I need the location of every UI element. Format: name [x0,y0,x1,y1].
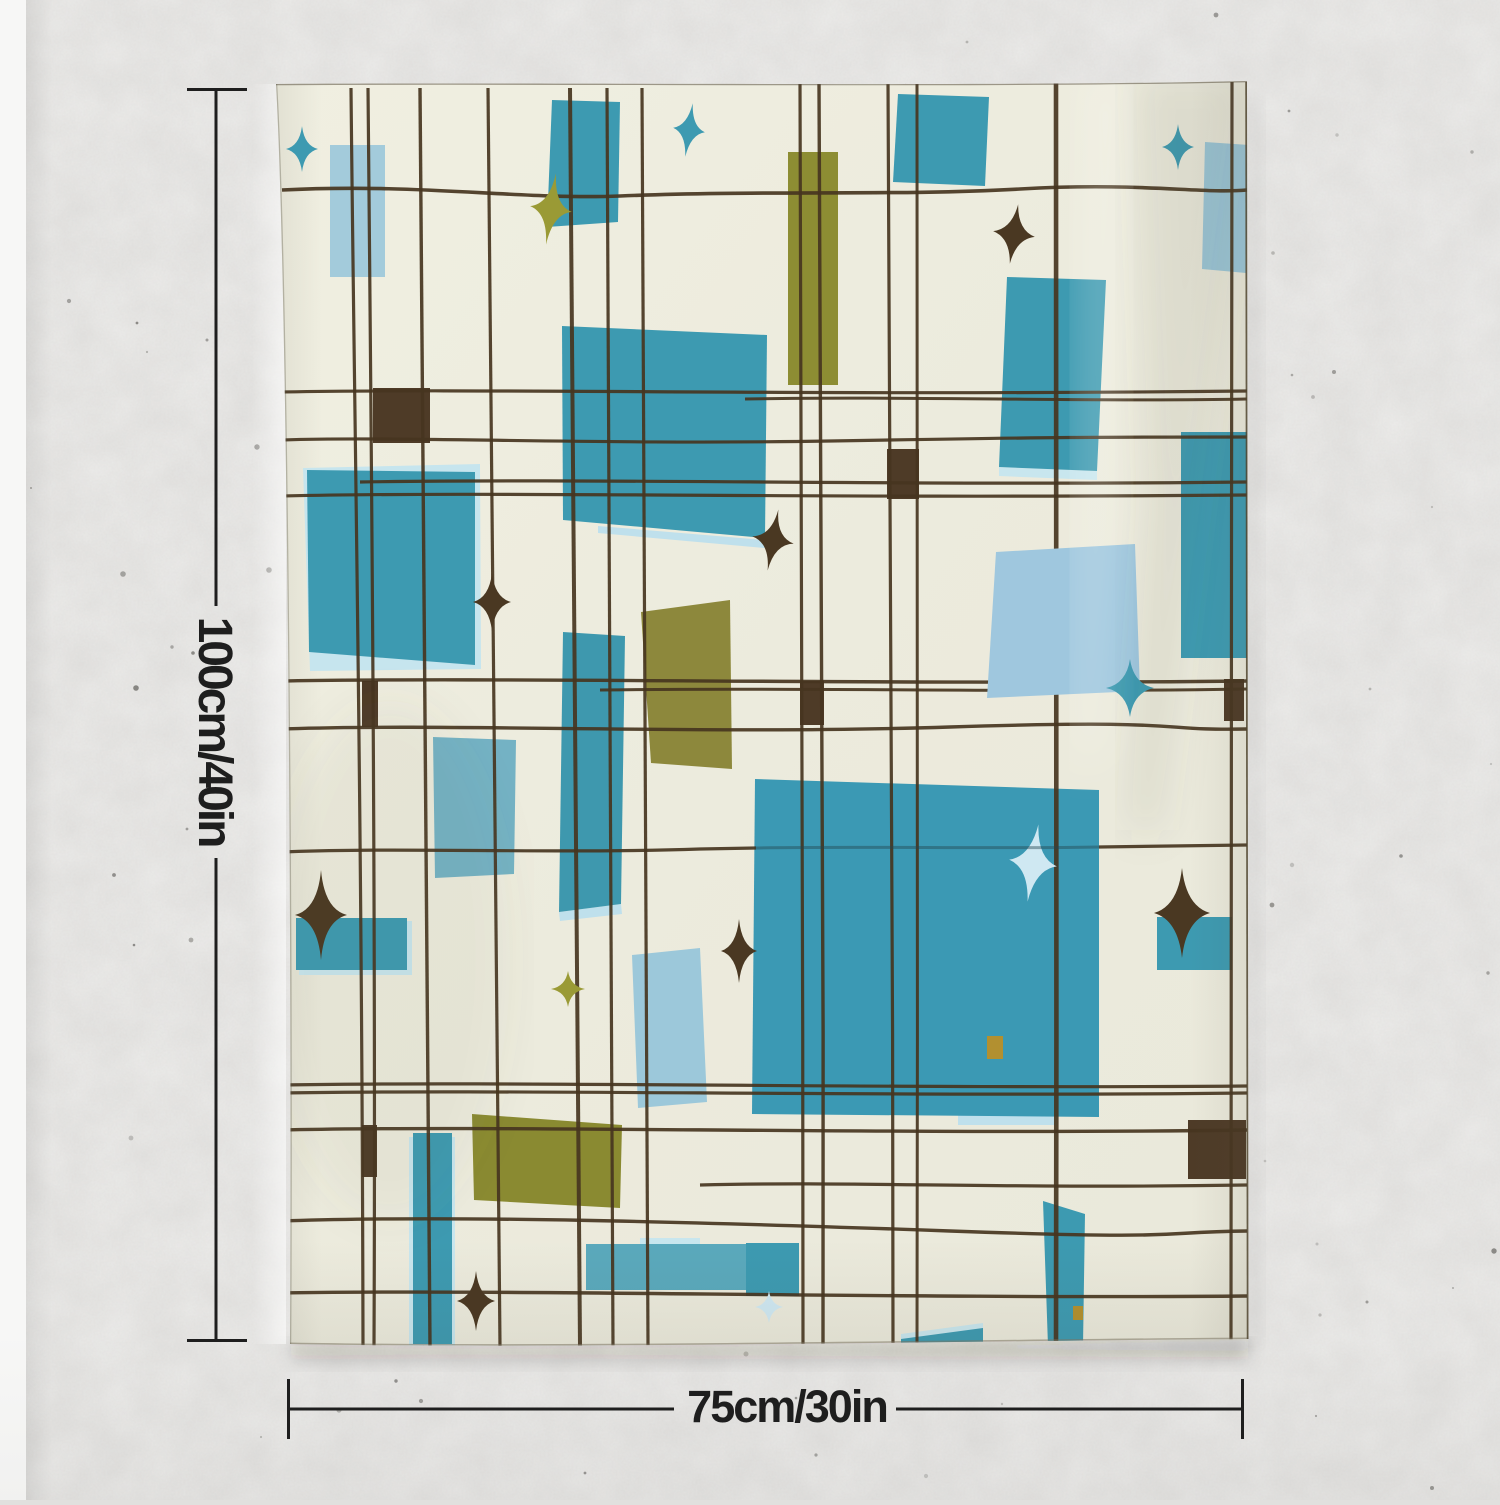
svg-text:75cm/30in: 75cm/30in [687,1381,887,1432]
svg-text:100cm/40in: 100cm/40in [188,617,241,847]
